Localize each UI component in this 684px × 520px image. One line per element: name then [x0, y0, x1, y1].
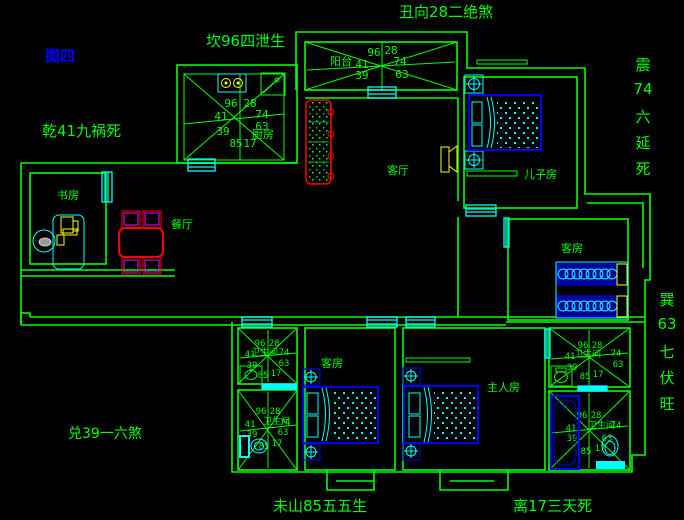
room-label-kitchen: 厨房: [252, 126, 274, 142]
rose-num: 96: [367, 46, 380, 59]
pillow: [307, 416, 318, 437]
rose-num: 39: [355, 69, 368, 82]
corridor-inner-wall: [587, 203, 643, 268]
stove: [218, 74, 246, 92]
pillow: [409, 416, 420, 437]
annotation-xun: 巽 63 七 伏 旺: [656, 289, 678, 419]
pillow: [409, 393, 420, 414]
room-label-study: 书房: [57, 187, 79, 203]
window-sill: [578, 386, 607, 391]
kitchen-sink: [261, 73, 285, 95]
bed-son: [465, 75, 541, 169]
room-label-guest-right: 客房: [561, 240, 583, 256]
room-label-bathroom: 卫生间: [263, 414, 290, 427]
lamp-symbol: [403, 443, 420, 460]
annotation-char: 死: [632, 158, 654, 184]
annotation-char: 63: [656, 315, 678, 341]
rose-num: 85: [229, 137, 242, 150]
porch-right: [440, 470, 508, 490]
hall-wall: [21, 313, 645, 325]
dining-chair: [122, 257, 140, 274]
window: [102, 172, 112, 202]
room-label-balcony: 阳台: [330, 53, 352, 69]
lamp-symbol: [465, 151, 483, 169]
rose-num: 74: [393, 55, 407, 68]
room-label-bathroom: 卫生间: [251, 345, 278, 358]
rose-num: 96: [224, 97, 237, 110]
porch-left: [327, 470, 374, 490]
window-sill: [262, 384, 297, 389]
rose-num: 39: [216, 125, 229, 138]
annotation-qian: 乾41九祸死: [42, 123, 121, 140]
room-label-guest-bottom: 客房: [321, 355, 343, 371]
rose-num: 63: [279, 359, 290, 369]
pillow: [617, 264, 627, 285]
rose-num: 74: [279, 348, 290, 358]
rose-num: 63: [613, 360, 624, 370]
rose-num: 85: [259, 442, 270, 452]
room-label-master: 主人房: [487, 379, 520, 395]
bunk-beds: [556, 262, 628, 318]
rose-num: 63: [395, 68, 408, 81]
window: [466, 205, 496, 216]
annotation-char: 七: [656, 341, 678, 367]
pillow: [472, 102, 482, 123]
window: [188, 159, 215, 171]
rose-num: 17: [272, 439, 283, 449]
pillow: [307, 393, 318, 414]
annotation-char: 延: [632, 132, 654, 158]
room-label-living: 客厅: [387, 162, 409, 178]
annotation-wei: 未山85五五生: [273, 498, 367, 515]
tv: [441, 146, 457, 172]
annotation-dui: 兑39一六煞: [68, 426, 142, 442]
rose-num: 41: [245, 420, 256, 430]
annotation-zhen: 震 74 六 延 死: [632, 54, 654, 184]
annotation-char: 巽: [656, 289, 678, 315]
rose-num: 85: [580, 372, 591, 382]
annotation-char: 伏: [656, 367, 678, 393]
bed-guest: [303, 369, 378, 460]
pillow: [617, 296, 627, 317]
lamp-symbol: [403, 368, 420, 385]
rose-num: 74: [611, 349, 622, 359]
annotation-char: 旺: [656, 393, 678, 419]
bed-master: [403, 368, 478, 460]
pillow: [472, 125, 482, 146]
annotation-kan: 坎96四泄生: [206, 33, 285, 50]
room-label-bathroom: 卫生间: [588, 418, 615, 431]
study-desk: [33, 215, 84, 269]
room-label-bathroom: 卫生间: [574, 347, 601, 360]
dining-chair: [143, 257, 161, 274]
rose-balcony: [305, 42, 457, 90]
sofa: [306, 100, 334, 184]
cad-canvas[interactable]: 96 28 41 74 39 63 85 17 96 28 41 74 39 6…: [0, 0, 684, 520]
keyboard: [57, 235, 64, 245]
rose-num: 41: [566, 424, 577, 434]
annotation-li: 离17三天死: [513, 498, 592, 515]
rose-num: 85: [258, 371, 269, 381]
rose-num: 17: [593, 370, 604, 380]
dining-chair: [122, 211, 140, 228]
annotation-north: 丑向28二绝煞: [399, 4, 493, 21]
annotation-char: 六: [632, 106, 654, 132]
rose-num: 63: [278, 428, 289, 438]
mouse: [39, 238, 51, 246]
dining-set: [119, 211, 163, 274]
annotation-char: 74: [632, 80, 654, 106]
dining-table: [119, 228, 163, 257]
rose-num: 41: [214, 110, 227, 123]
rose-num: 17: [271, 369, 282, 379]
rose-num: 85: [581, 447, 592, 457]
room-label-son: 儿子房: [524, 166, 557, 182]
figure-label: 图四: [45, 48, 75, 65]
dining-chair: [143, 211, 161, 228]
room-label-dining: 餐厅: [171, 216, 193, 232]
annotation-char: 震: [632, 54, 654, 80]
